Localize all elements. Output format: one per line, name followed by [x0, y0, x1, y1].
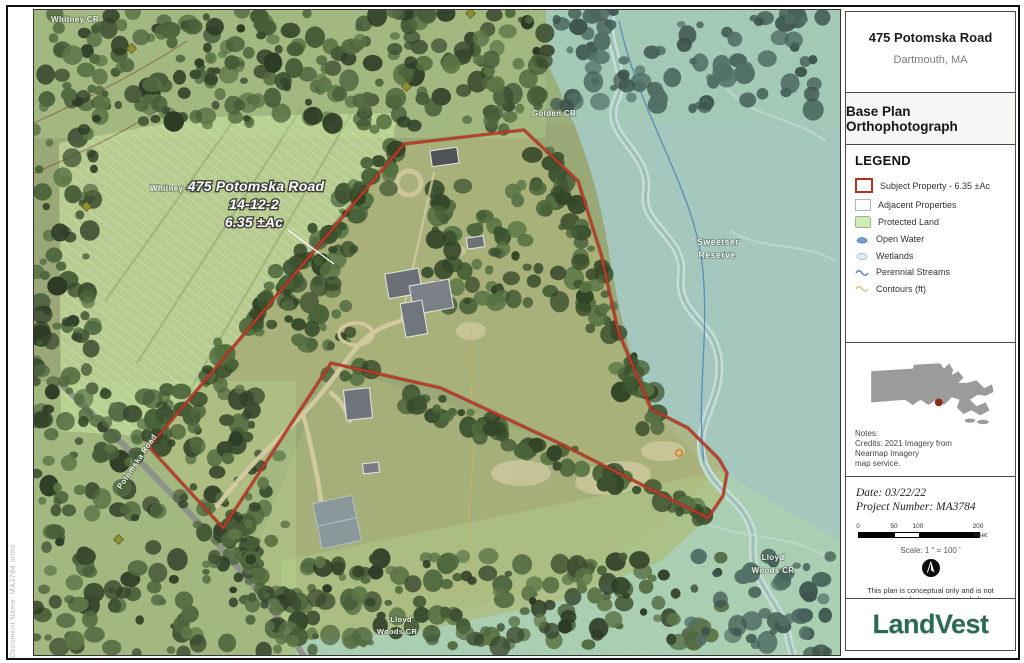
- notes-line: Notes:: [855, 429, 952, 439]
- map-label-lloyd: Lloyd: [762, 553, 785, 562]
- subject-property-label: 14-12-2: [229, 196, 279, 212]
- tree-blob: [421, 267, 433, 278]
- tree-blob: [193, 521, 203, 529]
- tree-blob: [566, 46, 573, 53]
- tree-blob: [525, 16, 533, 24]
- tree-blob: [795, 67, 807, 77]
- tree-blob: [254, 328, 265, 337]
- tree-blob: [800, 56, 811, 67]
- tree-blob: [515, 104, 524, 114]
- tree-blob: [171, 384, 191, 400]
- tree-blob: [78, 124, 90, 135]
- tree-blob: [128, 576, 138, 586]
- tree-blob: [43, 306, 51, 315]
- tree-blob: [666, 613, 681, 625]
- tree-blob: [527, 86, 546, 107]
- tree-blob: [480, 626, 491, 636]
- tree-blob: [608, 362, 625, 375]
- tree-blob: [202, 575, 211, 584]
- shed: [363, 462, 380, 474]
- plan-sheet: Document Name: MA3784 ortho: [0, 0, 1024, 663]
- tree-blob: [304, 321, 320, 337]
- tree-blob: [102, 416, 112, 428]
- tree-blob: [91, 24, 100, 33]
- tree-blob: [812, 572, 832, 587]
- tree-blob: [62, 317, 74, 327]
- tree-blob: [626, 93, 637, 103]
- legend-item-label: Protected Land: [878, 217, 939, 227]
- tree-blob: [56, 261, 66, 271]
- tree-blob: [466, 223, 483, 236]
- tree-blob: [352, 94, 368, 109]
- tree-blob: [43, 333, 59, 350]
- tree-blob: [368, 566, 383, 580]
- tree-blob: [267, 320, 274, 326]
- tree-blob: [458, 49, 472, 64]
- legend-item-adjacent: Adjacent Properties: [855, 199, 1015, 211]
- stream-swatch-icon: [855, 267, 869, 278]
- tree-blob: [51, 504, 62, 516]
- tree-blob: [340, 370, 351, 381]
- tree-blob: [190, 408, 198, 416]
- tree-blob: [65, 631, 84, 650]
- tree-blob: [124, 85, 142, 103]
- tree-blob: [43, 456, 55, 466]
- tree-blob: [36, 339, 43, 345]
- tree-blob: [587, 279, 604, 292]
- tree-blob: [47, 277, 67, 296]
- tree-blob: [291, 318, 306, 331]
- tree-blob: [464, 298, 471, 305]
- tree-blob: [227, 529, 242, 540]
- tree-blob: [739, 92, 756, 107]
- tree-blob: [71, 332, 82, 341]
- tree-blob: [640, 608, 647, 616]
- tree-blob: [456, 625, 475, 640]
- tree-blob: [305, 99, 312, 106]
- tree-blob: [452, 573, 462, 581]
- tree-blob: [339, 300, 352, 312]
- tree-blob: [531, 591, 538, 597]
- tree-blob: [520, 607, 530, 615]
- tree-blob: [369, 553, 381, 565]
- tree-blob: [78, 416, 89, 427]
- tree-blob: [75, 210, 84, 219]
- orthophoto-map[interactable]: Whitney CRWhitney CRGolden CRSweetserRes…: [33, 9, 841, 656]
- tree-blob: [84, 627, 105, 643]
- tree-blob: [479, 548, 499, 564]
- locus-block: Notes: Credits: 2021 Imagery from Nearma…: [845, 342, 1016, 477]
- tree-blob: [61, 614, 73, 625]
- tree-blob: [447, 408, 457, 417]
- tree-blob: [701, 627, 710, 636]
- tree-blob: [63, 148, 82, 167]
- tree-blob: [456, 84, 471, 97]
- tree-blob: [147, 581, 162, 594]
- tree-blob: [131, 514, 139, 521]
- tree-blob: [202, 569, 210, 575]
- tree-blob: [490, 248, 501, 257]
- tree-blob: [523, 297, 534, 308]
- tree-blob: [507, 221, 526, 238]
- tree-blob: [577, 584, 587, 593]
- tree-blob: [116, 19, 127, 31]
- tree-blob: [404, 575, 421, 592]
- notes-line: map service.: [855, 459, 952, 469]
- tree-blob: [212, 101, 220, 110]
- tree-blob: [818, 608, 832, 623]
- tree-blob: [83, 340, 100, 358]
- tree-blob: [203, 43, 212, 53]
- tree-blob: [150, 115, 160, 123]
- tree-blob: [322, 113, 342, 134]
- tree-blob: [104, 443, 114, 453]
- tree-blob: [264, 281, 275, 290]
- legend-heading: LEGEND: [855, 153, 1015, 168]
- tree-blob: [385, 566, 397, 575]
- tree-blob: [244, 520, 252, 529]
- tree-blob: [707, 75, 719, 89]
- tree-blob: [353, 34, 366, 47]
- legend-item-label: Contours (ft): [876, 284, 926, 294]
- tree-blob: [281, 23, 301, 38]
- tree-blob: [457, 409, 465, 416]
- tree-blob: [231, 360, 239, 369]
- tree-blob: [499, 24, 517, 38]
- tree-blob: [714, 552, 727, 564]
- tree-blob: [466, 409, 475, 417]
- tree-blob: [116, 62, 126, 74]
- tree-blob: [251, 93, 265, 108]
- tree-blob: [575, 568, 593, 586]
- tree-blob: [404, 56, 417, 69]
- tree-blob: [183, 19, 203, 35]
- tree-blob: [248, 421, 255, 429]
- tree-blob: [432, 404, 440, 414]
- tree-blob: [229, 548, 236, 555]
- tree-blob: [629, 551, 650, 569]
- tree-blob: [727, 32, 742, 47]
- tree-blob: [307, 223, 317, 233]
- tree-blob: [431, 38, 447, 53]
- tree-blob: [781, 73, 800, 93]
- tree-blob: [100, 389, 112, 400]
- tree-blob: [635, 421, 649, 436]
- tree-blob: [485, 265, 494, 274]
- tree-blob: [46, 139, 53, 147]
- tree-blob: [77, 63, 95, 78]
- legend-item-contour: Contours (ft): [855, 283, 1015, 294]
- tree-blob: [607, 20, 617, 30]
- tree-blob: [76, 548, 96, 565]
- tree-blob: [544, 623, 559, 639]
- tree-blob: [128, 560, 148, 576]
- tree-blob: [178, 500, 188, 508]
- map-label-lloyd: Lloyd: [390, 615, 412, 624]
- map-label-woods-cr: Woods CR: [752, 566, 795, 575]
- tree-blob: [263, 593, 270, 599]
- tree-blob: [49, 595, 62, 609]
- tree-blob: [181, 627, 192, 640]
- tree-blob: [74, 485, 86, 495]
- tree-blob: [684, 617, 698, 629]
- tree-blob: [318, 77, 332, 92]
- tree-blob: [441, 579, 453, 589]
- tree-blob: [610, 85, 618, 91]
- notes-line: Credits: 2021 Imagery from: [855, 439, 952, 449]
- tree-blob: [363, 55, 383, 71]
- tree-blob: [229, 587, 237, 594]
- island: [977, 420, 989, 424]
- tree-blob: [38, 497, 46, 505]
- aerial-imagery: Whitney CRWhitney CRGolden CRSweetserRes…: [34, 10, 840, 655]
- tree-blob: [529, 181, 547, 195]
- legend-item-subject: Subject Property - 6.35 ±Ac: [855, 178, 1015, 193]
- tree-blob: [352, 633, 361, 641]
- tree-blob: [533, 263, 543, 274]
- tree-blob: [550, 291, 569, 312]
- tree-blob: [807, 77, 822, 91]
- tree-blob: [803, 563, 811, 571]
- tree-blob: [44, 428, 59, 440]
- legend-item-label: Open Water: [876, 234, 924, 244]
- tree-blob: [75, 437, 83, 445]
- tree-blob: [236, 24, 245, 32]
- tree-blob: [251, 568, 266, 581]
- tree-blob: [45, 384, 60, 399]
- tree-blob: [544, 600, 556, 610]
- tree-blob: [38, 585, 50, 595]
- tree-blob: [587, 587, 602, 603]
- scale-tick-label: 50: [890, 523, 897, 530]
- tree-blob: [110, 402, 119, 409]
- tree-blob: [534, 613, 547, 627]
- tree-blob: [654, 46, 666, 56]
- legend-item-label: Subject Property - 6.35 ±Ac: [880, 181, 990, 191]
- tree-blob: [135, 615, 144, 624]
- tree-blob: [43, 203, 50, 210]
- tree-blob: [619, 79, 635, 93]
- tree-blob: [413, 607, 429, 623]
- tree-blob: [287, 635, 299, 647]
- tree-blob: [658, 570, 670, 581]
- tree-blob: [698, 102, 712, 113]
- tree-blob: [619, 553, 628, 562]
- tree-blob: [797, 608, 814, 622]
- tree-blob: [310, 306, 324, 319]
- guest-house: [344, 388, 373, 421]
- tree-blob: [522, 147, 543, 163]
- tree-blob: [246, 541, 257, 552]
- tree-blob: [268, 264, 283, 278]
- tree-blob: [53, 167, 72, 187]
- tree-blob: [89, 54, 100, 64]
- tree-blob: [598, 303, 609, 313]
- tree-blob: [245, 554, 256, 565]
- adjacent-swatch-icon: [855, 199, 871, 211]
- tree-blob: [415, 92, 429, 105]
- tree-blob: [622, 593, 630, 599]
- property-title: 475 Potomska Road: [846, 12, 1015, 45]
- tree-blob: [178, 87, 191, 99]
- tree-blob: [61, 88, 77, 101]
- tree-blob: [390, 32, 400, 40]
- tree-blob: [748, 587, 761, 598]
- water-swatch-icon: [855, 234, 869, 245]
- tree-blob: [275, 72, 292, 90]
- tree-blob: [503, 111, 518, 123]
- tree-blob: [746, 634, 757, 644]
- tree-blob: [62, 45, 83, 65]
- tree-blob: [82, 253, 90, 259]
- tree-blob: [325, 276, 342, 291]
- tree-blob: [386, 88, 406, 108]
- tree-blob: [535, 24, 554, 43]
- tree-blob: [547, 445, 563, 461]
- details-block: Date: 03/22/22 Project Number: MA3784 05…: [845, 476, 1016, 599]
- tree-blob: [397, 116, 411, 128]
- tree-blob: [529, 597, 536, 605]
- tree-blob: [264, 535, 278, 547]
- tree-blob: [56, 412, 75, 431]
- tree-blob: [203, 491, 211, 500]
- tree-blob: [170, 424, 186, 440]
- tree-blob: [734, 63, 755, 84]
- tree-blob: [512, 58, 524, 70]
- tree-blob: [584, 71, 604, 93]
- tree-blob: [66, 575, 84, 591]
- tree-blob: [315, 556, 326, 568]
- state-outline: [871, 363, 993, 415]
- tree-blob: [265, 621, 275, 632]
- tree-blob: [82, 566, 97, 578]
- tree-blob: [161, 406, 173, 418]
- tree-blob: [229, 597, 238, 607]
- tree-blob: [594, 32, 611, 51]
- tree-blob: [648, 96, 667, 114]
- tree-blob: [328, 246, 337, 253]
- tree-blob: [553, 461, 562, 471]
- tree-blob: [194, 58, 204, 67]
- tree-blob: [778, 615, 789, 626]
- legend-list: Subject Property - 6.35 ±AcAdjacent Prop…: [855, 178, 1015, 294]
- tree-blob: [206, 18, 224, 36]
- tree-blob: [573, 461, 590, 477]
- tree-blob: [102, 640, 121, 655]
- tree-blob: [222, 453, 234, 465]
- tree-blob: [205, 73, 218, 85]
- tree-blob: [282, 595, 301, 613]
- tree-blob: [188, 422, 201, 433]
- tree-blob: [151, 595, 164, 606]
- tree-blob: [618, 56, 629, 64]
- north-arrow-icon: [846, 558, 1015, 583]
- tree-blob: [712, 569, 720, 577]
- barn: [430, 147, 459, 167]
- tree-blob: [576, 299, 592, 316]
- tree-blob: [275, 45, 283, 54]
- tree-blob: [360, 576, 370, 584]
- tree-blob: [115, 101, 123, 109]
- tree-blob: [785, 31, 803, 48]
- tree-blob: [145, 540, 161, 555]
- tree-blob: [245, 615, 255, 625]
- tree-blob: [44, 634, 52, 641]
- tree-blob: [432, 88, 452, 106]
- map-label-sweetser: Sweetser: [697, 237, 739, 247]
- tree-blob: [413, 596, 426, 608]
- tree-blob: [65, 387, 73, 394]
- tree-blob: [266, 34, 279, 44]
- tree-blob: [511, 194, 524, 208]
- tree-blob: [423, 625, 441, 642]
- tree-blob: [224, 96, 242, 115]
- tree-blob: [566, 229, 578, 239]
- tree-blob: [120, 505, 131, 514]
- tree-blob: [169, 575, 179, 584]
- tree-blob: [35, 165, 44, 173]
- property-town: Dartmouth, MA: [846, 45, 1015, 66]
- legend-item-stream: Perennial Streams: [855, 267, 1015, 278]
- tree-blob: [438, 553, 459, 572]
- tree-blob: [257, 477, 269, 489]
- tree-blob: [696, 634, 707, 646]
- tree-blob: [92, 115, 101, 123]
- tree-blob: [825, 551, 837, 561]
- map-label-reserve: Reserve: [698, 250, 735, 260]
- tree-blob: [44, 565, 57, 576]
- tree-blob: [438, 395, 446, 403]
- tree-blob: [679, 25, 697, 45]
- tree-blob: [264, 88, 281, 108]
- tree-blob: [263, 71, 277, 86]
- tree-blob: [203, 13, 210, 20]
- tree-blob: [39, 102, 49, 112]
- tree-blob: [314, 256, 323, 266]
- tree-blob: [487, 79, 502, 93]
- tree-blob: [322, 339, 333, 351]
- tree-blob: [132, 29, 149, 45]
- tree-blob: [46, 248, 63, 263]
- legend-item-water: Open Water: [855, 234, 1015, 245]
- outbuilding: [466, 236, 484, 249]
- tree-blob: [64, 185, 81, 203]
- tree-blob: [536, 53, 553, 69]
- scale-unit: Feet: [974, 532, 987, 539]
- tree-blob: [576, 44, 591, 60]
- tree-blob: [218, 634, 236, 653]
- tree-blob: [240, 538, 247, 544]
- tree-blob: [149, 503, 166, 519]
- tree-blob: [218, 51, 227, 59]
- tree-blob: [287, 42, 304, 56]
- plan-type-block: Base Plan Orthophotograph: [845, 92, 1016, 145]
- tree-blob: [173, 70, 186, 85]
- tree-blob: [331, 561, 344, 575]
- tree-blob: [80, 220, 100, 241]
- tree-blob: [243, 47, 255, 59]
- tree-blob: [663, 68, 681, 87]
- tree-blob: [236, 61, 244, 67]
- tree-blob: [512, 554, 532, 575]
- tree-blob: [245, 578, 253, 585]
- tree-blob: [550, 266, 566, 281]
- tree-blob: [472, 259, 483, 270]
- subject-property-label: 475 Potomska Road: [187, 178, 325, 194]
- tree-blob: [493, 226, 504, 238]
- tree-blob: [560, 610, 576, 624]
- tree-blob: [523, 264, 532, 271]
